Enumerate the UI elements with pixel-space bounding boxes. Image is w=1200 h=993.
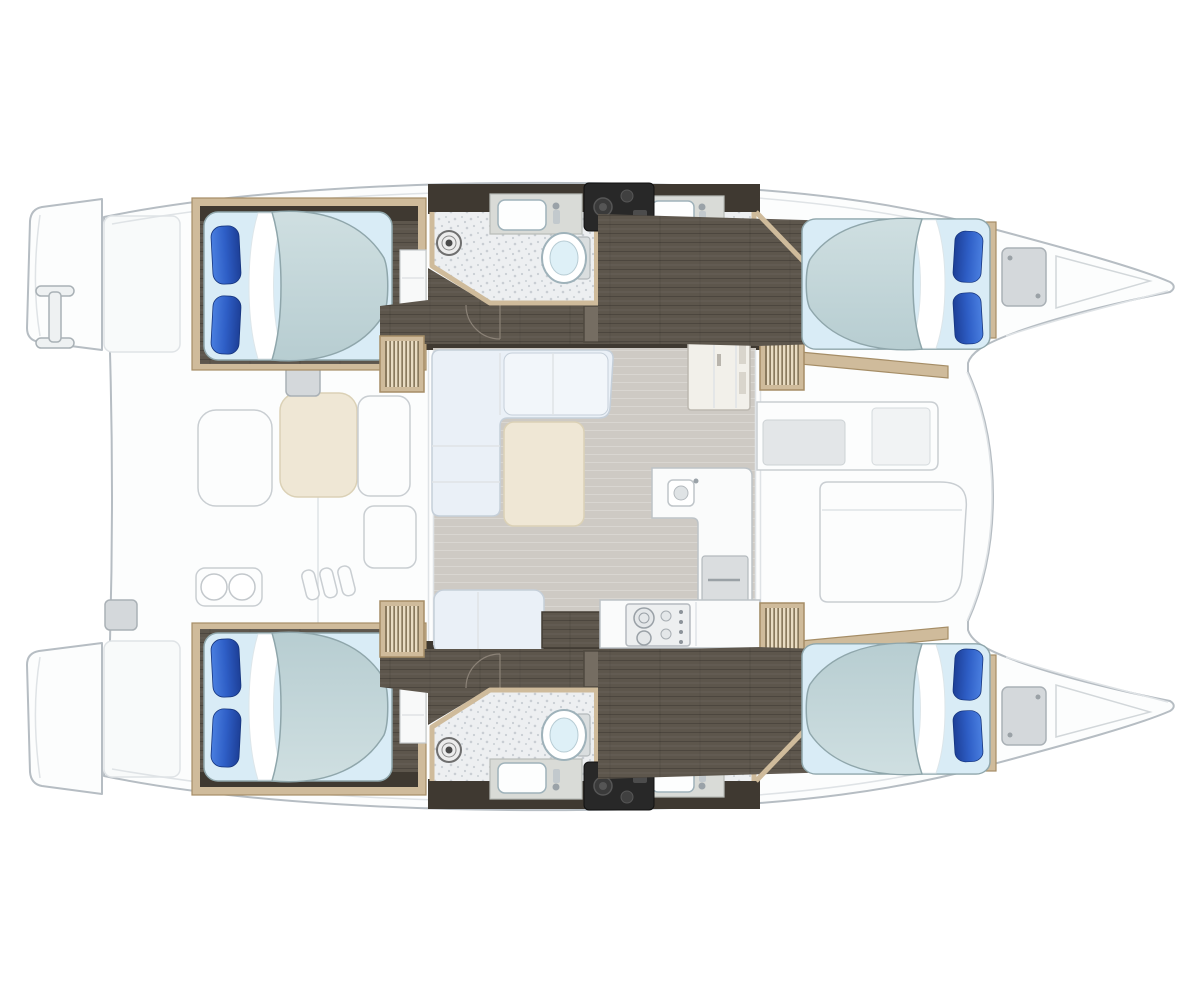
galley-sink [668,479,699,507]
sink-fixture [490,194,582,234]
forward-console [757,402,938,470]
galley-base-cabinet [542,612,600,648]
cockpit-side-table [364,506,416,568]
transom-step [104,641,180,777]
cockpit-seat [358,396,410,496]
forward-cabin [598,212,1150,350]
salon-bench [434,590,544,654]
bow-deck-hatch [1002,248,1046,306]
transom-step [104,216,180,352]
cockpit-steps [301,565,357,601]
fridge-front [702,556,748,606]
coffee-table [504,422,584,526]
catamaran-floorplan [0,0,1200,993]
stove-fixture [626,604,690,646]
forward-bench [820,482,966,602]
sofa-chaise [504,353,608,415]
grill-unit [196,568,262,606]
cockpit-bench [198,410,272,506]
floorplan-svg [0,0,1200,993]
deck-hatch [105,600,137,630]
cockpit-table [280,393,357,497]
